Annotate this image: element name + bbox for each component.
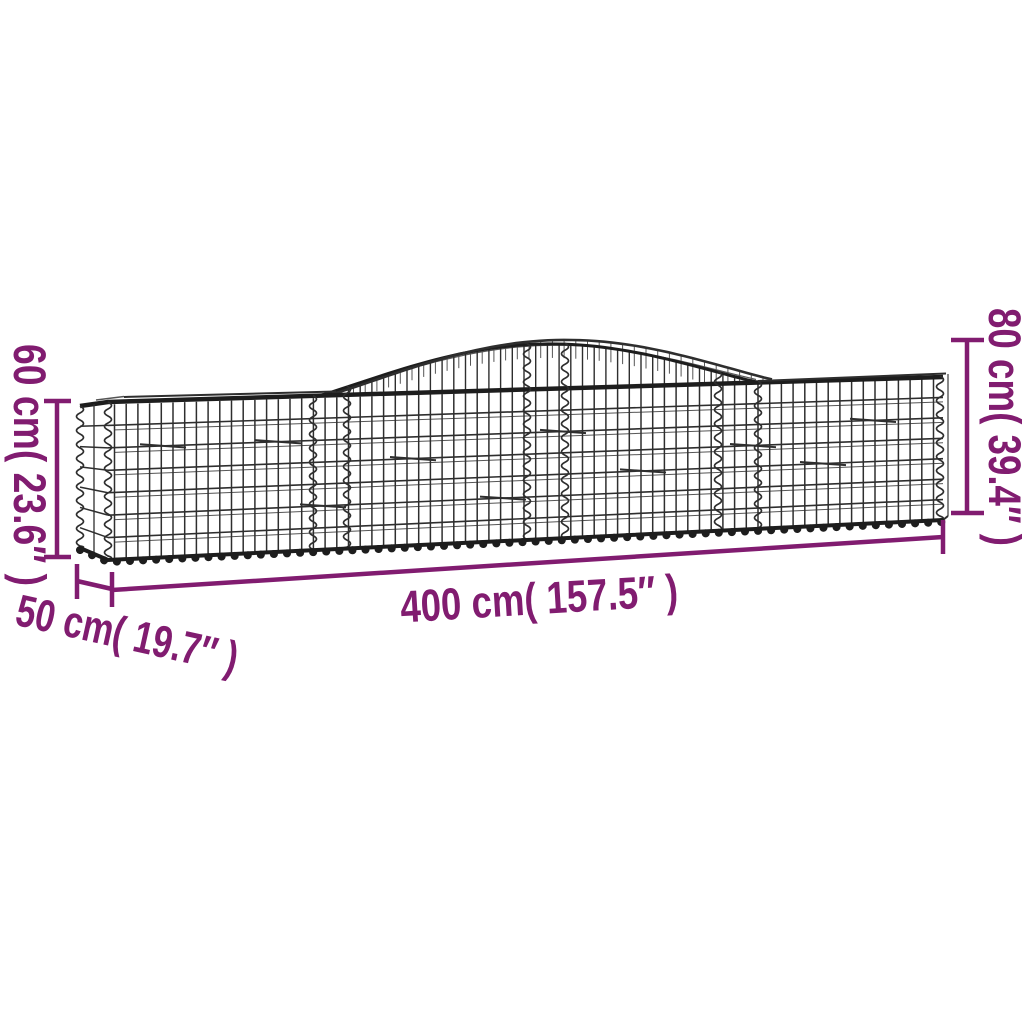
dimension-end-height: 60 cm( 23.6″ ) bbox=[4, 344, 71, 586]
gabion-basket-illustration bbox=[77, 340, 949, 562]
dimension-depth-line bbox=[77, 581, 112, 589]
gabion-dimension-diagram: 60 cm( 23.6″ ) 80 cm( 39.4″ ) 400 cm( 15… bbox=[0, 0, 1024, 1024]
dimension-peak-height: 80 cm( 39.4″ ) bbox=[951, 308, 1024, 546]
dimension-peak-height-label: 80 cm( 39.4″ ) bbox=[979, 308, 1024, 546]
diagram-stage: 60 cm( 23.6″ ) 80 cm( 39.4″ ) 400 cm( 15… bbox=[0, 0, 1024, 1024]
dimension-depth-label: 50 cm( 19.7″ ) bbox=[12, 585, 244, 684]
dimension-length-label: 400 cm( 157.5″ ) bbox=[399, 565, 680, 633]
dimension-end-height-label: 60 cm( 23.6″ ) bbox=[4, 344, 55, 586]
